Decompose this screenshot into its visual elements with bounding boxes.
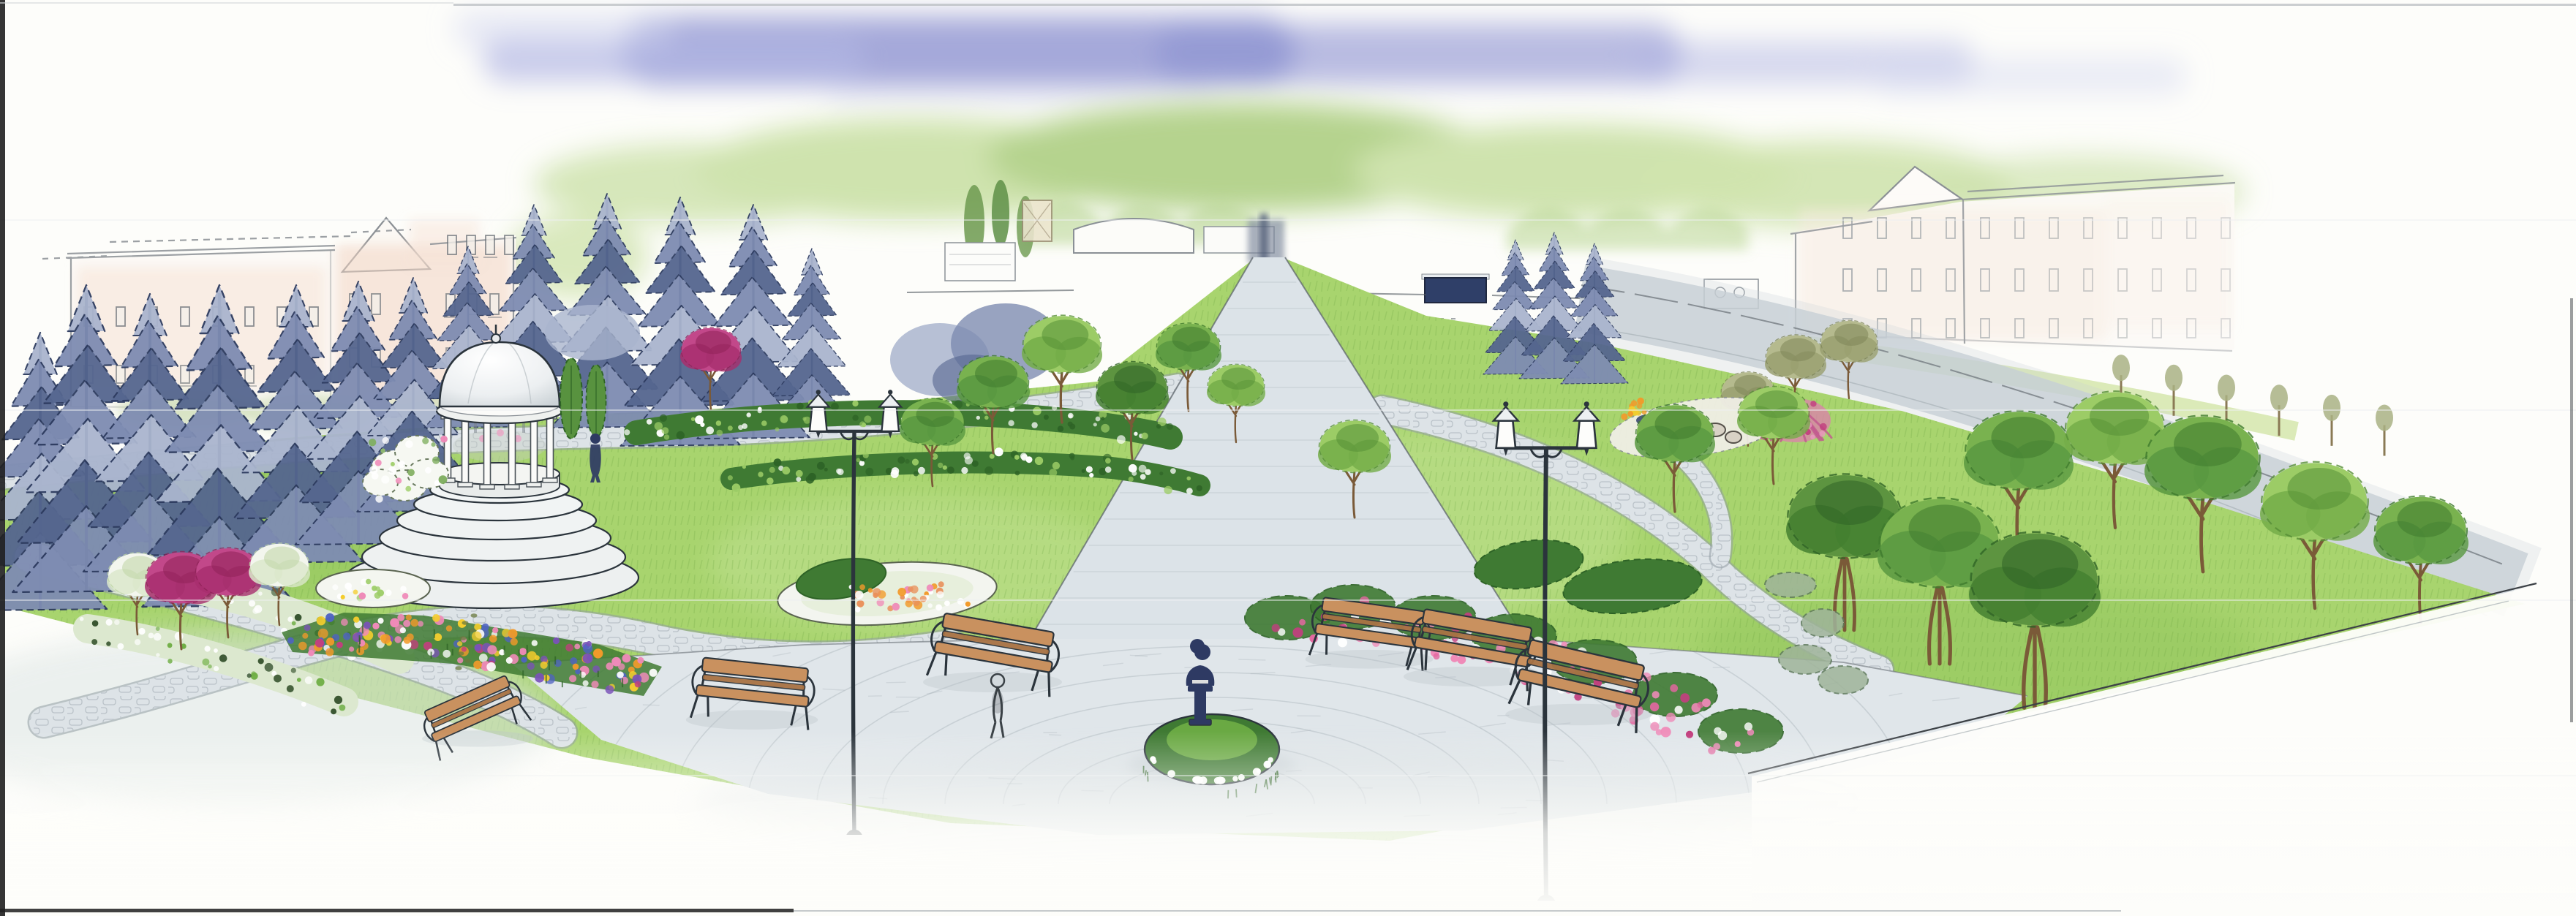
bench-shadow	[923, 672, 1062, 692]
white-spiraea-hedge-dot	[796, 470, 803, 477]
column-base	[480, 485, 494, 489]
tulip-flower	[457, 641, 462, 646]
tulip-flower	[381, 634, 391, 644]
rock-garden-flower	[1621, 413, 1627, 420]
white-spiraea-hedge-dot	[918, 467, 925, 474]
white-spiraea-hedge-dot	[1129, 464, 1137, 473]
window	[372, 294, 380, 314]
shrub-dab	[432, 442, 436, 447]
white-spiraea-hedge-dot	[1035, 457, 1043, 465]
white-hedge-row-dot	[316, 678, 324, 686]
white-spiraea-hedge-dot	[1156, 424, 1161, 428]
tulip-flower	[519, 648, 527, 655]
white-spiraea-hedge-dot	[706, 426, 714, 434]
tulip-flower	[511, 638, 518, 646]
top-frame-line-soft	[0, 2, 453, 4]
weeping-bloom	[1820, 423, 1827, 431]
white-spiraea-hedge-dot	[1089, 473, 1093, 477]
white-spiraea-hedge-dot	[914, 471, 919, 476]
tulip-flower	[317, 616, 325, 625]
tulip-flower	[473, 661, 482, 670]
white-spiraea-hedge-dot	[836, 469, 841, 474]
white-spiraea-hedge-dot	[1105, 466, 1112, 473]
round-bed-flower	[359, 592, 366, 599]
tulip-flower	[622, 654, 631, 663]
white-spiraea-hedge-dot	[817, 462, 825, 470]
round-bed-flower	[344, 583, 352, 590]
tulip-flower	[302, 633, 308, 639]
tulip-flower	[508, 629, 518, 638]
oval-bed-flower	[911, 597, 916, 602]
window	[490, 294, 499, 314]
plaza-scratch	[1238, 659, 1265, 660]
white-hedge-row-dot	[118, 643, 124, 650]
round-bed-flower	[366, 579, 371, 584]
white-hedge-row-dot	[301, 702, 306, 707]
white-spiraea-hedge-dot	[824, 468, 828, 472]
white-hedge-row-dot	[167, 659, 173, 664]
white-spiraea-hedge-dot	[1068, 422, 1073, 427]
white-spiraea-hedge-dot	[1086, 466, 1093, 473]
footprint	[470, 628, 476, 632]
tulip-flower	[492, 627, 498, 633]
gazebo-column	[462, 414, 469, 482]
tulip-flower	[475, 645, 481, 651]
white-spiraea-hedge-dot	[1197, 485, 1202, 491]
white-spiraea-hedge-dot	[863, 453, 869, 458]
tulip-flower	[489, 635, 497, 643]
white-hedge-row-dot	[92, 620, 99, 627]
tree-canopy-dark	[1815, 480, 1883, 525]
white-spiraea-hedge-dot	[767, 477, 774, 485]
white-spiraea-hedge-dot	[1044, 415, 1049, 420]
window	[505, 235, 513, 254]
white-spiraea-hedge-dot	[769, 467, 775, 473]
tulip-flower	[432, 614, 440, 622]
rose-flower	[1299, 619, 1306, 626]
white-spiraea-hedge-dot	[1058, 425, 1063, 431]
white-spiraea-hedge-dot	[1187, 477, 1191, 481]
round-bed-flower	[332, 584, 338, 590]
white-spiraea-hedge-dot	[938, 463, 943, 468]
plaza-scratch	[643, 705, 660, 705]
tulip-flower	[372, 623, 379, 629]
white-spiraea-hedge-dot	[662, 427, 669, 434]
white-hedge-row-dot	[339, 705, 346, 711]
white-spiraea-hedge-dot	[1170, 468, 1176, 474]
weeping-bloom	[1810, 401, 1816, 406]
tree-canopy-dark	[264, 546, 300, 569]
tulip-flower	[457, 657, 463, 663]
white-hedge-row-dot	[214, 648, 218, 653]
tulip-flower	[418, 621, 423, 627]
oval-bed-flower	[855, 607, 861, 613]
tulip-flower	[400, 627, 406, 633]
gazebo-column	[531, 414, 538, 482]
distant-pavilion-curved-roof	[1074, 219, 1194, 253]
white-spiraea-hedge-dot	[1167, 423, 1173, 430]
white-spiraea-hedge-dot	[782, 466, 790, 474]
oval-bed-flower	[935, 605, 942, 611]
tulip-flower	[535, 655, 540, 660]
tulip-flower	[406, 615, 412, 621]
footprint	[462, 621, 469, 625]
tulip-flower	[325, 648, 334, 656]
shrub-dab	[439, 475, 448, 484]
statue-collar	[1192, 680, 1208, 684]
tree-canopy-dark	[1114, 366, 1156, 393]
white-spiraea-hedge-dot	[780, 416, 788, 423]
white-spiraea-hedge-dot	[1117, 435, 1126, 444]
shrub-dab	[425, 467, 432, 474]
tulip-flower	[304, 624, 311, 631]
white-spiraea-hedge-dot	[758, 472, 763, 477]
tulip-flower	[553, 637, 560, 644]
white-spiraea-hedge-dot	[831, 403, 839, 411]
oval-bed-flower	[965, 602, 971, 607]
tulip-flower	[326, 637, 334, 646]
oval-bed-flower	[892, 603, 900, 611]
tulip-flower	[573, 664, 579, 670]
rock-garden-flower	[1637, 398, 1644, 405]
column-base	[458, 482, 472, 487]
shrub-dab	[369, 466, 377, 474]
footprint	[465, 659, 472, 663]
white-hedge-row-dot	[219, 654, 227, 662]
white-hedge-row-dot	[292, 621, 296, 626]
sapling-canopy	[2270, 385, 2288, 411]
white-spiraea-hedge-dot	[1015, 471, 1020, 476]
tulip-flower	[287, 637, 294, 644]
white-spiraea-hedge-dot	[761, 420, 767, 426]
column-base	[505, 485, 519, 489]
shrub-dab	[440, 436, 448, 443]
tulip-flower	[349, 646, 354, 651]
white-spiraea-hedge-dot	[912, 459, 919, 466]
white-hedge-row-dot	[106, 641, 110, 646]
white-spiraea-hedge-dot	[1069, 414, 1073, 418]
tulip-flower	[487, 645, 497, 654]
shrub-dab	[380, 448, 385, 453]
sky-pale-band	[1872, 57, 2187, 95]
shrub-dab	[405, 440, 413, 448]
bottom-fade	[0, 731, 2576, 916]
tulip-flower	[535, 673, 544, 683]
peach-wash	[2106, 197, 2231, 329]
white-spiraea-hedge-dot	[747, 412, 751, 417]
white-hedge-row-dot	[331, 708, 336, 714]
white-spiraea-hedge-dot	[728, 425, 733, 431]
white-spiraea-hedge-dot	[774, 458, 782, 466]
gazebo-column	[547, 418, 554, 478]
white-spiraea-hedge-dot	[1129, 477, 1134, 482]
shrub-dab	[375, 460, 382, 466]
white-spiraea-hedge-dot	[1008, 420, 1014, 426]
sage-shrub	[1818, 666, 1868, 694]
sky-violet-band	[1156, 23, 1682, 85]
shrub-dab	[375, 495, 383, 502]
white-hedge-row-dot	[334, 696, 342, 704]
tulip-flower	[442, 650, 451, 658]
white-hedge-row-dot	[208, 665, 212, 669]
weeping-bloom	[1810, 435, 1815, 439]
bench-shadow	[1505, 704, 1652, 725]
rose-flower	[1675, 706, 1683, 714]
sapling-canopy	[2376, 405, 2393, 431]
oval-bed-flower	[957, 598, 964, 605]
tree-canopy-dark	[1992, 417, 2055, 458]
tulip-flower	[565, 644, 573, 652]
navy-kiosk	[1425, 278, 1486, 303]
tulip-flower	[570, 657, 577, 665]
tulip-flower	[356, 648, 364, 656]
shrub-dab	[398, 461, 405, 468]
shrub-dab	[407, 469, 415, 477]
white-spiraea-hedge-dot	[1096, 417, 1101, 422]
white-hedge-row-dot	[287, 685, 294, 692]
tulip-flower	[403, 620, 410, 627]
white-hedge-row-dot	[274, 675, 282, 683]
tree-canopy-dark	[1834, 324, 1868, 346]
window	[116, 307, 125, 326]
white-spiraea-hedge-dot	[695, 415, 704, 424]
white-spiraea-hedge-dot	[1069, 453, 1075, 459]
white-hedge-row-dot	[247, 673, 252, 678]
white-hedge-row-dot	[287, 616, 293, 621]
tree-canopy-dark	[1655, 409, 1702, 439]
oval-bed-flower	[938, 581, 944, 587]
white-hedge-row-dot	[202, 659, 209, 666]
white-hedge-row-dot	[295, 614, 302, 621]
rose-flower	[1434, 653, 1440, 659]
tree-canopy-dark	[1336, 424, 1379, 452]
round-bed-flower	[402, 593, 409, 599]
white-spiraea-hedge-dot	[1141, 433, 1148, 439]
tulip-flower	[569, 675, 576, 682]
tulip-flower	[353, 616, 359, 622]
tulip-flower	[532, 640, 538, 646]
tree-canopy-dark	[1221, 368, 1255, 390]
tree-canopy-dark	[1909, 504, 1981, 552]
white-hedge-row-dot	[258, 591, 263, 596]
white-hedge-row-dot	[148, 633, 154, 639]
tree-canopy-dark	[916, 402, 954, 427]
white-spiraea-hedge-dot	[738, 425, 743, 430]
park-rendering-canvas	[0, 0, 2576, 916]
tree-canopy-dark	[2174, 422, 2242, 466]
tulip-flower	[377, 618, 383, 624]
white-spiraea-hedge-dot	[859, 421, 865, 427]
white-hedge-row-dot	[214, 666, 219, 671]
sapling-canopy	[2112, 355, 2130, 381]
white-spiraea-hedge-dot	[796, 477, 801, 482]
rose-flower	[1450, 654, 1458, 662]
round-bed-flower	[374, 592, 381, 599]
tulip-flower	[574, 644, 580, 650]
white-hedge-row-dot	[205, 646, 211, 651]
tulip-flower	[606, 685, 614, 694]
white-spiraea-hedge-dot	[984, 466, 993, 475]
sky-pale-band	[453, 10, 673, 48]
weeping-bloom	[1819, 431, 1825, 436]
sage-shrub	[1801, 609, 1844, 637]
tulip-flower	[527, 662, 535, 670]
white-spiraea-hedge-dot	[728, 475, 733, 480]
oval-bed-flower	[873, 593, 878, 598]
white-hedge-row-dot	[114, 620, 119, 625]
tulip-flower	[583, 681, 589, 686]
bench-shadow	[686, 710, 818, 730]
white-hedge-row-dot	[258, 658, 264, 664]
white-spiraea-hedge-dot	[796, 403, 804, 410]
oval-bed-flower	[868, 588, 873, 593]
white-hedge-row-dot	[80, 617, 84, 621]
statue-head	[1194, 644, 1210, 660]
white-spiraea-hedge-dot	[1031, 422, 1037, 428]
white-spiraea-hedge-dot	[892, 467, 900, 475]
white-spiraea-hedge-dot	[972, 461, 979, 467]
white-hedge-row-dot	[175, 632, 184, 640]
white-spiraea-hedge-dot	[897, 456, 905, 463]
sage-shrub	[1779, 645, 1831, 674]
tree-canopy-dark	[2398, 501, 2452, 537]
tree-canopy-dark	[1780, 338, 1816, 361]
white-spiraea-hedge-dot	[1186, 488, 1193, 494]
tulip-flower	[593, 648, 603, 658]
tree-canopy-dark	[1042, 319, 1089, 350]
white-spiraea-hedge-dot	[905, 459, 909, 463]
shrub-dab	[388, 466, 396, 474]
tulip-flower	[364, 621, 371, 629]
pedestal-cap	[1188, 686, 1213, 692]
shrub-dab	[369, 439, 376, 446]
white-spiraea-hedge-dot	[808, 473, 816, 481]
pedestal-column	[1194, 690, 1206, 722]
white-spiraea-hedge-dot	[864, 415, 871, 423]
oval-bed-flower	[928, 603, 933, 607]
shrub-dab	[405, 486, 411, 492]
tulip-flower	[434, 633, 442, 641]
white-spiraea-hedge-dot	[1145, 469, 1150, 475]
oval-bed-flower	[944, 600, 950, 606]
boulder	[1725, 431, 1741, 443]
white-spiraea-hedge-dot	[990, 454, 995, 459]
rose-flower	[1670, 684, 1678, 692]
white-spiraea-hedge-dot	[775, 428, 780, 432]
white-hedge-row-dot	[106, 619, 113, 626]
left-frame-strip	[0, 0, 5, 916]
rose-flower	[1666, 713, 1676, 722]
window	[181, 307, 189, 326]
tree-canopy-dark	[696, 330, 731, 354]
white-spiraea-hedge-dot	[1052, 462, 1060, 469]
white-hedge-row-dot	[156, 653, 159, 656]
tulip-flower	[325, 613, 334, 622]
tree-canopy-dark	[1755, 390, 1798, 418]
tree-canopy-dark	[2288, 468, 2351, 510]
tulip-flower	[318, 629, 328, 639]
oval-bed-flower	[920, 596, 927, 602]
shrub-dab	[381, 475, 389, 483]
treeline-scallops	[1507, 207, 1748, 250]
shrub-dab	[396, 477, 402, 483]
footprint	[471, 613, 478, 618]
white-hedge-row-dot	[305, 676, 313, 684]
rose-flower	[1650, 703, 1659, 711]
tulip-flower	[486, 662, 496, 672]
oval-bed-flower	[859, 584, 865, 590]
white-spiraea-hedge-dot	[1134, 432, 1137, 436]
tulip-flower	[617, 671, 623, 678]
white-hedge-row-dot	[291, 668, 296, 673]
white-spiraea-hedge-dot	[961, 467, 968, 474]
tulip-flower	[315, 639, 324, 648]
tulip-flower	[462, 647, 467, 652]
rose-flower	[1652, 691, 1660, 698]
tulip-flower	[635, 681, 641, 688]
white-spiraea-hedge-dot	[691, 417, 695, 421]
white-spiraea-hedge-dot	[1101, 424, 1110, 433]
tulip-flower	[587, 655, 592, 661]
tree-canopy-dark	[2090, 397, 2149, 436]
white-spiraea-hedge-dot	[995, 447, 1003, 456]
white-spiraea-hedge-dot	[859, 461, 865, 466]
white-hedge-row-dot	[91, 639, 97, 645]
footprint	[460, 636, 467, 640]
gazebo-floor	[440, 463, 560, 485]
footprint	[467, 644, 474, 648]
white-spiraea-hedge-dot	[1014, 455, 1020, 460]
footprint	[456, 666, 462, 670]
round-bed-flower	[372, 586, 377, 591]
tulip-flower	[472, 632, 482, 642]
white-spiraea-hedge-dot	[732, 483, 741, 492]
column-base	[543, 478, 557, 482]
white-spiraea-hedge-dot	[1049, 469, 1057, 477]
white-spiraea-hedge-dot	[624, 429, 630, 435]
tulip-flower	[587, 641, 592, 646]
oval-bed-flower	[855, 591, 864, 599]
white-spiraea-hedge-dot	[1026, 456, 1033, 463]
tulip-flower	[637, 657, 644, 664]
oval-bed-flower	[856, 600, 864, 607]
right-frame-mark	[2570, 298, 2573, 722]
cypress-tree	[587, 365, 606, 437]
round-bed-flower	[353, 590, 358, 595]
sage-shrub	[1765, 572, 1816, 597]
tulip-flower	[591, 681, 598, 688]
gazebo-finial	[492, 334, 500, 343]
rose-flower	[1272, 624, 1280, 632]
rose-flower	[1744, 722, 1752, 730]
watercolor-painting	[0, 0, 2576, 916]
white-spiraea-hedge-dot	[943, 466, 947, 470]
shrub-dab	[391, 462, 395, 466]
white-hedge-row-dot	[138, 628, 145, 635]
tulip-flower	[404, 637, 411, 644]
white-spiraea-hedge-dot	[1159, 472, 1163, 475]
sapling-canopy	[2165, 365, 2183, 391]
tulip-flower	[298, 642, 307, 651]
white-spiraea-hedge-dot	[947, 466, 954, 474]
white-spiraea-hedge-dot	[976, 416, 980, 420]
sapling-canopy	[2218, 374, 2235, 401]
white-hedge-row-dot	[265, 663, 274, 672]
white-spiraea-hedge-dot	[1105, 458, 1111, 463]
cypress-tree	[560, 358, 582, 439]
oval-bed-flower	[897, 588, 906, 597]
column-base	[527, 482, 541, 487]
